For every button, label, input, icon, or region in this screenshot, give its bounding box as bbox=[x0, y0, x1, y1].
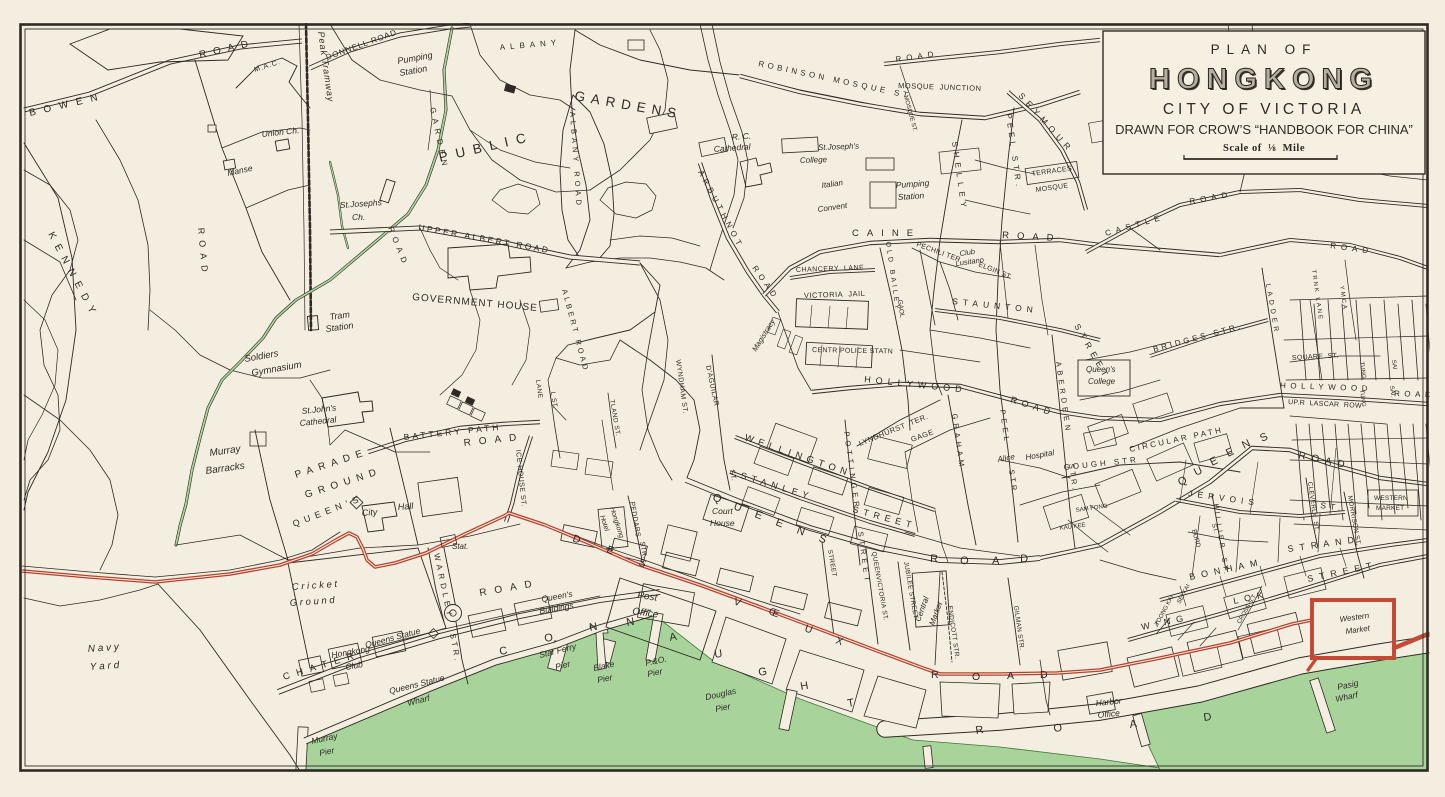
svg-text:House: House bbox=[710, 518, 735, 528]
svg-text:N a v y: N a v y bbox=[87, 642, 120, 655]
svg-text:St.Joseph's: St.Joseph's bbox=[818, 142, 859, 152]
svg-text:Court: Court bbox=[712, 506, 733, 516]
svg-text:R. C.: R. C. bbox=[731, 131, 751, 142]
svg-text:O: O bbox=[960, 555, 969, 567]
svg-text:Scale of ⅛ Mile: Scale of ⅛ Mile bbox=[1223, 143, 1305, 154]
svg-text:R: R bbox=[930, 553, 938, 565]
svg-text:College: College bbox=[1088, 377, 1116, 386]
svg-text:Hall: Hall bbox=[397, 501, 414, 512]
svg-text:CAINE: CAINE bbox=[852, 228, 921, 239]
svg-text:ROAD: ROAD bbox=[1394, 389, 1435, 399]
svg-text:CENTR POLICE STATN: CENTR POLICE STATN bbox=[812, 347, 893, 355]
svg-text:Queen's: Queen's bbox=[1086, 365, 1116, 374]
svg-text:College: College bbox=[800, 155, 828, 165]
svg-text:Ch.: Ch. bbox=[352, 212, 365, 222]
svg-text:A: A bbox=[992, 555, 1000, 567]
svg-text:City: City bbox=[361, 507, 378, 518]
svg-text:Y a r d: Y a r d bbox=[89, 660, 120, 673]
svg-text:D: D bbox=[1040, 669, 1048, 681]
svg-text:CITY OF VICTORIA: CITY OF VICTORIA bbox=[1163, 101, 1365, 118]
svg-text:DRAWN FOR CROW’S “HANDBOOK FOR: DRAWN FOR CROW’S “HANDBOOK FOR CHINA” bbox=[1115, 122, 1413, 137]
svg-text:R: R bbox=[931, 669, 939, 681]
svg-text:HONGKONG: HONGKONG bbox=[1149, 64, 1379, 96]
svg-text:PLAN OF: PLAN OF bbox=[1211, 42, 1318, 57]
svg-text:O: O bbox=[972, 671, 980, 683]
svg-text:WESTERN: WESTERN bbox=[1374, 495, 1408, 502]
svg-text:D: D bbox=[1020, 553, 1028, 565]
svg-text:Station: Station bbox=[897, 190, 924, 202]
svg-text:Stat.: Stat. bbox=[452, 542, 468, 551]
svg-text:A: A bbox=[1007, 670, 1014, 682]
svg-text:MARKET: MARKET bbox=[1376, 505, 1404, 512]
